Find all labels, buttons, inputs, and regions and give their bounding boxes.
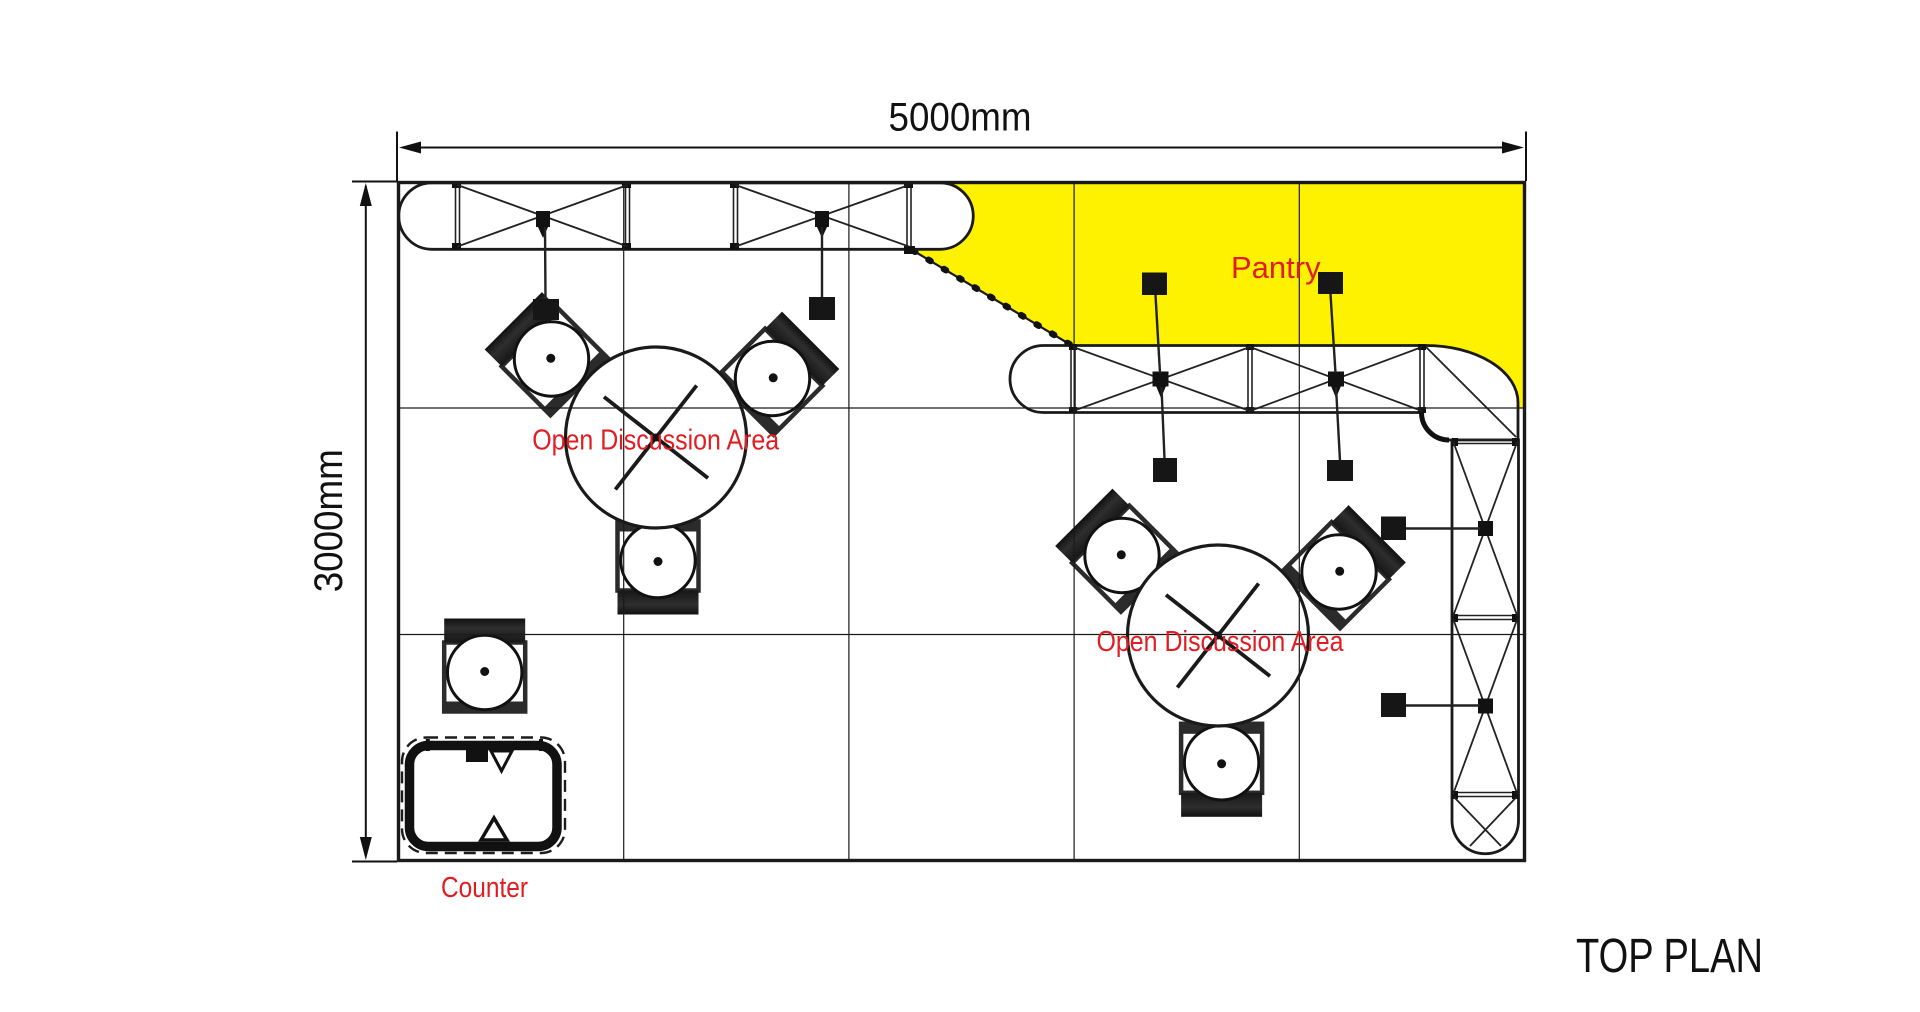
svg-text:Open Discussion Area: Open Discussion Area: [532, 425, 779, 457]
svg-text:3000mm: 3000mm: [307, 449, 351, 592]
svg-text:Counter: Counter: [441, 872, 528, 904]
svg-text:5000mm: 5000mm: [889, 96, 1032, 140]
svg-text:Pantry: Pantry: [1231, 250, 1321, 285]
svg-text:Open Discussion Area: Open Discussion Area: [1097, 626, 1344, 658]
svg-text:TOP PLAN: TOP PLAN: [1576, 930, 1763, 983]
